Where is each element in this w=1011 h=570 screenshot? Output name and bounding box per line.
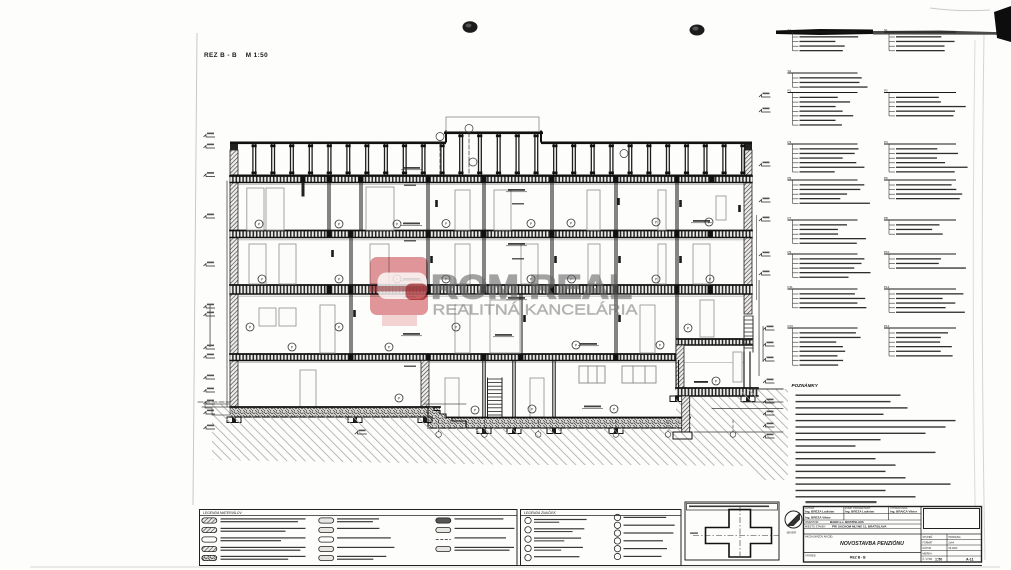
svg-text:FORMÁT: FORMÁT <box>923 541 934 544</box>
svg-text:S1: S1 <box>884 28 888 32</box>
svg-text:POZNÁMKY: POZNÁMKY <box>792 382 819 388</box>
svg-text:MIERKA: MIERKA <box>923 552 933 555</box>
svg-text:Ing. BREZA Ladislav: Ing. BREZA Ladislav <box>805 510 835 514</box>
svg-text:P9: P9 <box>788 250 792 254</box>
svg-text:P6: P6 <box>884 176 888 180</box>
svg-text:MIESTO STAVBY:: MIESTO STAVBY: <box>805 525 826 529</box>
svg-text:P4: P4 <box>884 140 888 144</box>
svg-text:Ing. BREZA Viktor: Ing. BREZA Viktor <box>805 516 832 520</box>
svg-text:PRI SUCHOM MLYNE 11, BRATISLAV: PRI SUCHOM MLYNE 11, BRATISLAVA <box>832 525 887 529</box>
svg-text:AKCIA (NÁZOV AKCIE):: AKCIA (NÁZOV AKCIE): <box>805 535 833 539</box>
svg-text:STUPEŇ: STUPEŇ <box>923 536 933 539</box>
svg-text:A-11: A-11 <box>966 558 974 562</box>
svg-text:DÁTUM: DÁTUM <box>923 547 932 550</box>
svg-text:REZ B - B M 1:50: REZ B - B M 1:50 <box>204 52 268 59</box>
svg-text:P7: P7 <box>788 216 792 220</box>
svg-text:LEGENDA ZNAČIEK: LEGENDA ZNAČIEK <box>524 510 556 515</box>
svg-text:P2: P2 <box>884 89 888 93</box>
svg-text:S1: S1 <box>788 28 792 32</box>
svg-text:P5: P5 <box>788 176 792 180</box>
svg-text:2xA4: 2xA4 <box>949 541 955 544</box>
svg-text:Č. VÝKR.: Č. VÝKR. <box>923 558 934 561</box>
svg-text:P11: P11 <box>788 285 793 289</box>
svg-text:REZ B - B: REZ B - B <box>850 556 866 560</box>
svg-text:P1: P1 <box>788 89 792 93</box>
svg-text:P8: P8 <box>884 216 888 220</box>
svg-text:NOVOSTAVBA PENZIÓNU: NOVOSTAVBA PENZIÓNU <box>840 540 904 547</box>
svg-text:P12: P12 <box>884 285 890 289</box>
svg-text:INVESTOR:: INVESTOR: <box>805 520 819 524</box>
svg-text:LEGENDA MATERIÁLOV: LEGENDA MATERIÁLOV <box>203 511 242 515</box>
svg-text:REALITNÁ KANCELÁRIA: REALITNÁ KANCELÁRIA <box>433 302 638 319</box>
svg-text:P14: P14 <box>884 324 890 328</box>
svg-text:S2: S2 <box>788 69 792 73</box>
svg-text:SEVER: SEVER <box>787 531 796 535</box>
svg-text:VÝKRES:: VÝKRES: <box>805 554 817 558</box>
svg-text:P3: P3 <box>788 140 792 144</box>
svg-text:Ing. BRAICA Viktor: Ing. BRAICA Viktor <box>890 510 918 514</box>
svg-text:Ing. BREZA Ladislav: Ing. BREZA Ladislav <box>845 510 875 514</box>
svg-text:PROFESIA: PROFESIA <box>949 536 961 539</box>
svg-text:05-2002: 05-2002 <box>949 547 958 550</box>
svg-text:1:50: 1:50 <box>935 558 942 562</box>
svg-text:P13: P13 <box>788 324 794 328</box>
svg-text:P10: P10 <box>884 250 890 254</box>
svg-text:BAER a.s. BRATISLAVA: BAER a.s. BRATISLAVA <box>830 520 865 524</box>
